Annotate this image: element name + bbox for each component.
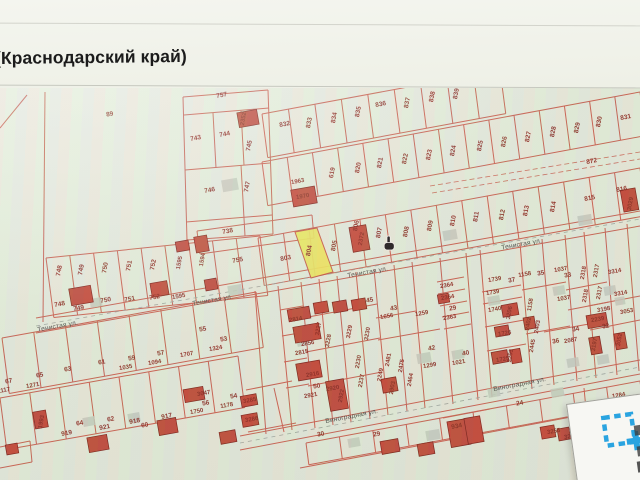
building-footprint: [5, 443, 19, 455]
parcel-number-label[interactable]: 757: [216, 91, 228, 100]
parcel-number-label[interactable]: 750: [101, 261, 110, 273]
parcel-number-label[interactable]: 62: [107, 415, 116, 423]
parcel-number-label[interactable]: 752: [149, 258, 158, 270]
parcel-number-label[interactable]: 751: [125, 259, 134, 271]
parcel-number-label[interactable]: 89: [106, 110, 115, 118]
parcel-number-label[interactable]: 810: [449, 214, 458, 226]
parcel-number-label[interactable]: 1963: [291, 178, 306, 186]
parcel-divider: [540, 400, 543, 422]
parcel-divider: [388, 139, 394, 183]
parcel-number-label[interactable]: 809: [426, 219, 435, 231]
road-edge-line: [432, 159, 640, 193]
parcel-number-label[interactable]: 828: [549, 125, 558, 137]
parcel-number-label[interactable]: 32: [602, 322, 611, 330]
parcel-number-label[interactable]: 820: [354, 161, 363, 173]
boundary-line: [43, 92, 45, 322]
parcel-number-label[interactable]: 1707: [180, 351, 195, 359]
parcel-number-label[interactable]: 55: [199, 325, 208, 333]
map-top-border: [0, 85, 640, 89]
boundary-line: [186, 215, 272, 222]
boundary-line: [544, 324, 589, 332]
parcel-number-label[interactable]: 1656: [380, 313, 395, 321]
building-footprint-faint: [550, 387, 564, 398]
parcel-number-label[interactable]: 829: [573, 121, 582, 133]
parcel-number-label[interactable]: 746: [204, 186, 216, 195]
boundary-line: [444, 324, 471, 329]
parcel-number-label[interactable]: 749: [77, 263, 86, 275]
boundary-line: [30, 441, 32, 462]
parcel-number-label[interactable]: 921: [99, 423, 111, 432]
parcel-divider: [394, 90, 400, 134]
building-footprint-faint: [552, 285, 565, 296]
boundary-line: [466, 253, 478, 400]
parcel-number-label[interactable]: 750: [100, 296, 112, 305]
parcel-number-label[interactable]: 1178: [220, 402, 235, 410]
building-footprint: [332, 300, 348, 313]
parcel-number-label[interactable]: 54: [230, 392, 239, 400]
boundary-line: [197, 215, 312, 231]
building-footprint-faint: [82, 416, 95, 427]
building-footprint: [87, 434, 109, 452]
parcel-divider: [462, 201, 468, 249]
building-footprint: [380, 439, 400, 455]
boundary-line: [286, 384, 309, 388]
parcel-divider: [119, 377, 126, 429]
building-footprint: [219, 430, 237, 445]
parcel-number-label[interactable]: 619: [328, 166, 337, 178]
parcel-number-label[interactable]: 2481: [385, 352, 393, 367]
parcel-number-label[interactable]: 2230: [355, 354, 363, 369]
parcel-number-label[interactable]: 749: [73, 304, 85, 313]
parcel-number-label[interactable]: 61: [98, 358, 107, 366]
boundary-line: [374, 269, 388, 415]
window-header: (Краснодарский край): [0, 0, 640, 88]
parcel-divider: [339, 437, 342, 459]
parcel-number-label[interactable]: 872: [586, 157, 598, 166]
street-name-label: Виноградная ул.: [493, 376, 547, 393]
parcel-number-label[interactable]: 40: [462, 349, 471, 357]
parcel-divider: [538, 187, 544, 235]
parcel-number-label[interactable]: 2318: [580, 265, 588, 280]
parcel-number-label[interactable]: 2903: [389, 380, 397, 395]
parcel-number-label[interactable]: 2921: [304, 392, 319, 400]
parcel-number-label[interactable]: 1595: [176, 255, 184, 270]
building-footprint-faint: [221, 178, 239, 193]
parcel-number-label[interactable]: 837: [403, 96, 412, 108]
parcel-number-label[interactable]: 744: [219, 130, 231, 139]
parcel-divider: [212, 241, 220, 300]
parcel-number-label[interactable]: 834: [330, 111, 339, 123]
boundary-line: [480, 250, 492, 397]
parcel-number-label[interactable]: 2363: [443, 314, 458, 322]
parcel-divider: [363, 143, 369, 187]
parcel-number-label[interactable]: 3229: [346, 324, 354, 339]
parcel-number-label[interactable]: 2814: [289, 316, 304, 324]
parcel-divider: [97, 321, 104, 376]
parcel-number-label[interactable]: 918: [129, 417, 141, 426]
parcel-number-label[interactable]: 832: [279, 120, 291, 129]
parcel-number-label[interactable]: 835: [354, 105, 363, 117]
parcel-number-label[interactable]: 755: [232, 256, 244, 265]
building-footprint: [417, 442, 435, 457]
parcel-divider: [262, 114, 268, 158]
strip-edge: [268, 114, 506, 158]
parcel-number-label[interactable]: 752: [149, 293, 161, 302]
street-name-label: Тенистая ул.: [501, 237, 543, 251]
boundary-line: [274, 388, 284, 432]
parcel-divider: [489, 120, 495, 164]
parcel-number-label[interactable]: 825: [476, 139, 485, 151]
boundary-line: [278, 286, 292, 430]
parcel-number-label[interactable]: 57: [157, 349, 166, 357]
parcel-number-label[interactable]: 1271: [26, 382, 41, 390]
boundary-line: [241, 165, 245, 236]
parcel-divider: [513, 191, 519, 239]
parcel-number-label[interactable]: 827: [524, 130, 533, 142]
parcel-number-label[interactable]: 838: [428, 90, 437, 102]
building-footprint-faint: [425, 429, 441, 441]
parcel-divider: [341, 99, 347, 143]
parcel-number-label[interactable]: 821: [376, 156, 385, 168]
parcel-number-label[interactable]: 2445: [529, 338, 537, 353]
parcel-number-label[interactable]: 3206: [506, 305, 514, 320]
parcel-divider: [615, 173, 621, 221]
parcel-number-label[interactable]: 833: [305, 116, 314, 128]
parcel-number-label[interactable]: 3228: [325, 333, 333, 348]
parcel-divider: [411, 210, 417, 258]
boundary-line: [520, 243, 532, 389]
parcel-divider: [487, 196, 493, 244]
parcel-number-label[interactable]: 836: [375, 100, 387, 109]
parcel-number-label[interactable]: 2318: [582, 288, 590, 303]
boundary-line: [378, 329, 440, 340]
parcel-number-label[interactable]: 831: [620, 113, 632, 122]
parcel-divider: [66, 327, 73, 382]
boundary-line: [542, 239, 554, 385]
building-footprint: [157, 417, 178, 435]
parcel-number-label[interactable]: 813: [522, 204, 531, 216]
parcel-number-label[interactable]: 1021: [452, 359, 467, 367]
parcel-divider: [436, 205, 442, 253]
parcel-number-label[interactable]: 2856: [301, 340, 316, 348]
parcel-number-label[interactable]: 30: [317, 430, 326, 438]
parcel-number-label[interactable]: 823: [425, 148, 434, 160]
clipped-panel-text: [634, 425, 640, 436]
parcel-number-label[interactable]: 919: [61, 429, 73, 438]
parcel-divider: [224, 298, 231, 353]
parcel-number-label[interactable]: 3053: [620, 308, 635, 316]
parcel-divider: [590, 101, 596, 145]
boundary-line: [213, 113, 216, 168]
area-select-plus-icon[interactable]: [598, 407, 640, 463]
cursor-palm: [384, 243, 394, 251]
parcel-divider: [189, 243, 197, 302]
parcel-number-label[interactable]: 3047: [197, 390, 212, 398]
hand-cursor-icon: [384, 236, 394, 250]
parcel-number-label[interactable]: 45: [366, 296, 375, 304]
parcel-number-label[interactable]: 59: [128, 354, 137, 362]
parcel-number-label[interactable]: 1158: [518, 271, 533, 279]
building-footprint: [204, 278, 218, 291]
parcel-number-label[interactable]: 822: [401, 152, 410, 164]
parcel-number-label[interactable]: 24: [516, 399, 525, 407]
parcel-number-label[interactable]: 2237: [358, 373, 366, 388]
parcel-number-label[interactable]: 3314: [614, 290, 629, 298]
parcel-divider: [338, 148, 344, 192]
street-name-label: Тенистая ул.: [192, 293, 234, 307]
building-footprint: [69, 285, 94, 306]
parcel-number-label[interactable]: 748: [54, 300, 66, 309]
boundary-line: [246, 381, 292, 390]
building-footprint: [313, 301, 329, 314]
boundary-line: [284, 358, 307, 362]
parcel-number-label[interactable]: 1740: [488, 306, 503, 314]
page-title: (Краснодарский край): [0, 46, 187, 69]
parcel-divider: [564, 182, 570, 230]
parcel-number-label[interactable]: 34: [572, 325, 581, 333]
parcel-divider: [149, 372, 156, 424]
parcel-number-label[interactable]: 36: [552, 337, 561, 345]
boundary-line: [185, 163, 270, 170]
parcel-number-label[interactable]: 53: [220, 335, 229, 343]
parcel-divider: [464, 125, 470, 169]
boundary-line: [412, 262, 425, 408]
parcel-number-label[interactable]: 1595: [172, 293, 187, 301]
boundary-line: [437, 277, 464, 282]
parcel-number-label[interactable]: 811: [472, 211, 481, 223]
parcel-divider: [306, 443, 309, 465]
parcel-divider: [421, 85, 427, 129]
parcel-number-label[interactable]: 738: [222, 227, 234, 236]
clipped-panel-text: [637, 446, 640, 457]
parcel-number-label[interactable]: 824: [449, 144, 458, 156]
parcel-number-label[interactable]: 1324: [209, 345, 224, 353]
parcel-number-label[interactable]: 1035: [119, 364, 134, 372]
faint-buildings: [82, 178, 625, 448]
parcel-divider: [288, 109, 294, 153]
parcel-number-label[interactable]: 3230: [364, 326, 372, 341]
parcel-number-label[interactable]: 2916: [306, 371, 321, 379]
parcel-number-label[interactable]: 2475: [398, 358, 406, 373]
parcel-number-label[interactable]: 60: [141, 421, 150, 429]
street-name-labels: Тенистая ул.Тенистая ул.Тенистая ул.Тени…: [37, 237, 547, 425]
parcel-number-label[interactable]: 748: [55, 264, 64, 276]
parcel-number-label[interactable]: 33: [564, 271, 573, 279]
parcel-number-label[interactable]: 29: [373, 430, 382, 438]
parcel-number-label[interactable]: 37: [508, 276, 517, 284]
parcel-number-label[interactable]: 42: [428, 344, 437, 352]
parcel-number-label[interactable]: 43: [390, 304, 399, 312]
parcel-number-label[interactable]: 839: [452, 87, 461, 99]
building-footprint: [175, 240, 190, 252]
parcel-number-label[interactable]: 803: [280, 254, 292, 263]
parcel-number-label[interactable]: 3198: [597, 306, 612, 314]
parcel-number-label[interactable]: 1037: [557, 295, 572, 303]
parcel-number-label[interactable]: 65: [36, 371, 45, 379]
parcel-number-label[interactable]: 747: [243, 180, 252, 192]
parcel-number-label[interactable]: 1594: [199, 252, 207, 267]
building-footprint-faint: [442, 229, 458, 241]
parcel-divider: [406, 424, 409, 446]
parcel-number-label[interactable]: 2364: [440, 282, 455, 290]
parcel-number-label[interactable]: 815: [584, 194, 596, 203]
parcel-number-label[interactable]: 1299: [423, 362, 438, 370]
parcel-number-label[interactable]: 807: [375, 226, 384, 238]
parcel-number-label[interactable]: 826: [500, 135, 509, 147]
parcel-number-label[interactable]: 2464: [407, 372, 415, 387]
road-edge-line: [430, 152, 640, 186]
parcel-number-label[interactable]: 3227: [315, 321, 323, 336]
parcel-number-label[interactable]: 751: [124, 295, 136, 304]
parcel-number-label[interactable]: 67: [5, 377, 14, 385]
parcel-divider: [315, 104, 321, 148]
parcel-divider: [46, 258, 54, 317]
building-footprint: [351, 298, 367, 311]
parcel-number-label[interactable]: 830: [595, 115, 604, 127]
parcel-divider: [89, 382, 96, 434]
parcel-number-label[interactable]: 743: [190, 134, 202, 143]
parcel-divider: [506, 406, 509, 428]
parcel-number-label[interactable]: 1259: [415, 310, 430, 318]
parcel-number-label[interactable]: 35: [537, 269, 546, 277]
parcel-number-label[interactable]: 808: [402, 225, 411, 237]
building-footprint-faint: [566, 357, 579, 368]
photographed-screen: 8975774374474523527467477381963197083283…: [0, 0, 640, 480]
building-footprint: [194, 235, 210, 253]
building-footprint-faint: [577, 214, 593, 226]
parcel-divider: [0, 398, 7, 450]
boundary-line: [356, 272, 370, 419]
parcel-number-label[interactable]: 2317: [596, 285, 604, 300]
highlighted-parcel[interactable]: [295, 228, 333, 278]
parcel-number-label[interactable]: 1726: [498, 330, 513, 338]
parcel-number-label[interactable]: 1158: [527, 297, 535, 312]
boundary-line: [183, 97, 187, 240]
building-footprint-faint: [347, 437, 360, 448]
parcel-number-label[interactable]: 2087: [564, 337, 579, 345]
parcel-number-label[interactable]: 2317: [593, 263, 601, 278]
strip-edge: [46, 236, 260, 258]
boundary-line: [0, 462, 32, 468]
header-divider: [0, 23, 640, 27]
parcel-divider: [413, 134, 419, 178]
parcel-number-label[interactable]: 814: [549, 200, 558, 212]
parcel-divider: [368, 94, 374, 138]
parcel-number-label[interactable]: 812: [498, 208, 507, 220]
parcel-divider: [262, 162, 268, 206]
parcel-number-label[interactable]: 2364: [441, 294, 456, 302]
boundary-line: [0, 95, 27, 128]
parcel-number-label[interactable]: 1739: [488, 276, 503, 284]
parcel-divider: [438, 129, 444, 173]
parcel-number-label[interactable]: 29: [449, 304, 458, 312]
parcel-number-label[interactable]: 745: [245, 139, 254, 151]
building-footprint-faint: [596, 354, 609, 365]
parcel-divider: [564, 106, 570, 150]
parcel-number-label[interactable]: 3314: [608, 268, 623, 276]
parcel-divider: [514, 115, 520, 159]
parcel-number-label[interactable]: 2815: [295, 349, 310, 357]
parcel-number-label[interactable]: 56: [202, 399, 211, 407]
parcel-divider: [539, 111, 545, 155]
